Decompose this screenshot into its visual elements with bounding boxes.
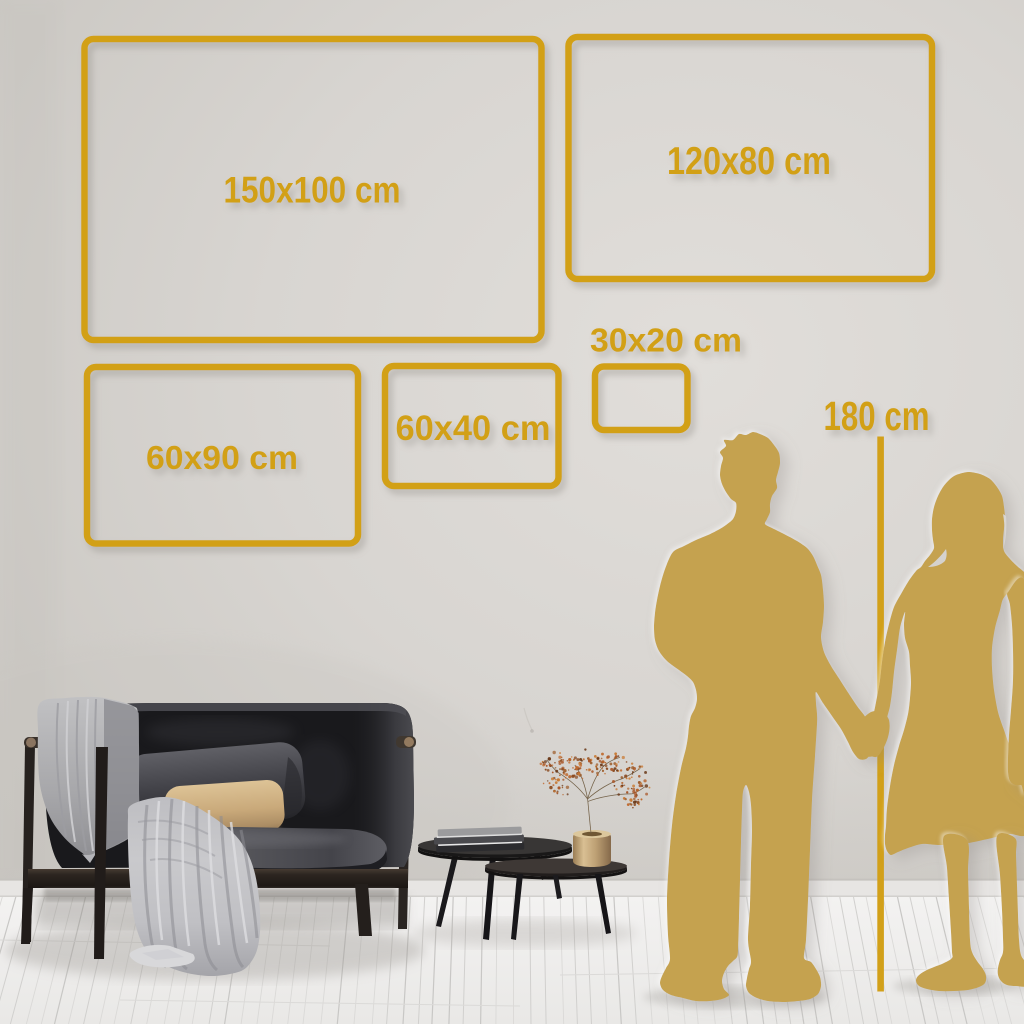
svg-text:120x80 cm: 120x80 cm — [667, 140, 831, 183]
svg-text:30x20 cm: 30x20 cm — [590, 322, 742, 359]
svg-text:60x40 cm: 60x40 cm — [396, 409, 551, 448]
svg-text:180 cm: 180 cm — [824, 393, 930, 439]
svg-text:150x100 cm: 150x100 cm — [224, 170, 401, 211]
svg-text:60x90 cm: 60x90 cm — [146, 439, 298, 476]
